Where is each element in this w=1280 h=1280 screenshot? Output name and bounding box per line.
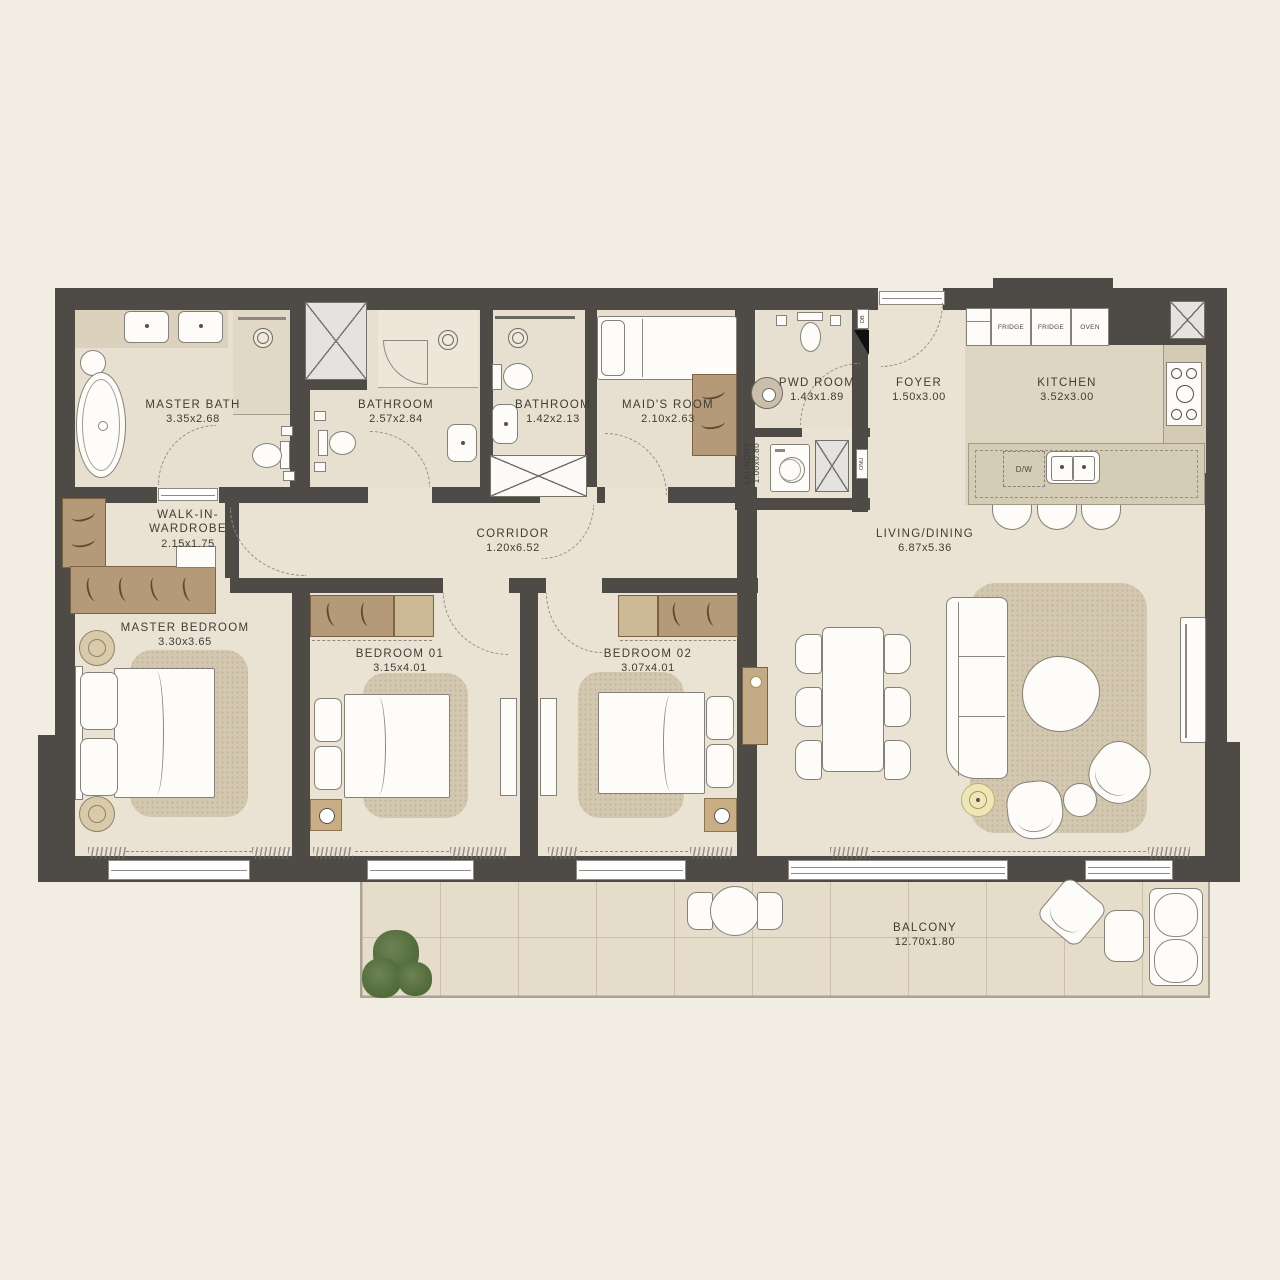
shaft-bathroom-icon [305,302,367,380]
toilet-bowl-icon [329,431,356,455]
curtain-hatch-icon [548,847,578,859]
onu-label: ONU [857,450,867,478]
floor-plan: DB ONU FRIDGE FRIDGE OVEN D/W [0,0,1280,1280]
room-name: KITCHEN [1037,377,1097,389]
room-name: MASTER BATH [145,399,240,411]
room-name: BEDROOM 01 [356,648,444,660]
toilet-bowl-icon [800,322,821,352]
room-label-pwd-room: PWD ROOM 1.43x1.89 [779,377,855,403]
bathtub-icon [76,372,126,478]
curtain-hatch-icon [450,847,506,859]
wall-pwd-bottom-1 [755,428,802,437]
dresser-icon [500,698,517,796]
wall-master-bedroom01 [292,578,310,858]
wall-accessory-icon [283,471,295,481]
room-dims: 12.70x1.80 [893,936,957,948]
room-name: FOYER [892,377,946,389]
curtain-hatch-icon [1148,847,1190,859]
room-name: BATHROOM [515,399,591,411]
bathroom-sink-icon [447,424,477,462]
toilet-bowl-icon [503,363,533,390]
room-label-balcony: BALCONY 12.70x1.80 [893,922,957,948]
db-box: DB [857,309,869,329]
dining-chair-icon [795,687,822,727]
room-label-bathroom-1: BATHROOM 2.57x2.84 [358,399,434,425]
curtain-track-line [126,851,252,852]
balcony-table-icon [710,886,760,936]
room-label-corridor: CORRIDOR 1.20x6.52 [476,528,549,554]
master-bath-shower-zone [233,308,292,415]
toilet-cistern-icon [318,430,328,456]
double-sink-icon [1046,451,1100,484]
tv-console-icon [1180,617,1206,743]
pillow-icon [314,746,342,790]
room-label-kitchen: KITCHEN 3.52x3.00 [1037,377,1097,403]
wall-corridor-3 [602,578,758,593]
room-label-laundry: LAUNDRY 1.00x0.80 [743,428,761,498]
fridge-1-label: FRIDGE [998,324,1024,331]
dining-table [822,627,884,772]
wardrobe-icon [62,498,106,568]
window-bedroom-02 [576,860,686,880]
shaft-laundry-icon [815,440,849,492]
fridge-2-label: FRIDGE [1038,324,1064,331]
dresser-icon [540,698,557,796]
wardrobe-icon [70,566,216,614]
bedside-table-icon [79,630,115,666]
pillow-icon [601,320,625,376]
room-label-bathroom-2: BATHROOM 1.42x2.13 [515,399,591,425]
room-dims: 3.30x3.65 [121,636,250,648]
db-label: DB [858,310,868,328]
room-name: MASTER BEDROOM [121,622,250,634]
double-bed-icon [598,692,705,794]
room-dims: 1.00x0.80 [752,428,761,498]
shower-head-icon [253,328,273,348]
curtain-hatch-icon [830,847,870,859]
room-dims: 1.43x1.89 [779,391,855,403]
toilet-cistern-icon [797,312,823,321]
room-dims: 2.15x1.75 [142,538,234,550]
wall-accessory-icon [830,315,841,326]
plant-icon [398,962,432,996]
room-dims: 3.52x3.00 [1037,391,1097,403]
wardrobe-icon [658,595,738,637]
dishwasher: D/W [1003,451,1045,487]
window-bedroom-01 [367,860,474,880]
room-name: MAID'S ROOM [622,399,714,411]
fridge-2: FRIDGE [1031,308,1071,346]
room-dims: 2.10x2.63 [622,413,714,425]
balcony-chair-icon [757,892,783,930]
console-table-icon [742,667,768,745]
onu-box: ONU [856,449,868,479]
curtain-hatch-icon [88,847,126,859]
room-label-bedroom-01: BEDROOM 01 3.15x4.01 [356,648,444,674]
wall-accessory-icon [314,411,326,421]
window-master-bedroom [108,860,250,880]
vanity-sink-icon [124,311,169,343]
shower-rail-icon [238,317,286,320]
vanity-sink-icon [178,311,223,343]
wardrobe-swing-line [620,640,736,641]
wall-top-protrusion [993,278,1113,290]
dining-chair-icon [884,740,911,780]
dishwasher-label: D/W [1016,465,1032,474]
room-label-walk-in-wardrobe: WALK-IN-WARDROBE 2.15x1.75 [142,508,234,550]
balcony-sofa-icon [1149,888,1203,986]
plant-icon [362,958,402,998]
double-bed-icon [114,668,215,798]
bedside-table-icon [79,796,115,832]
curtain-hatch-icon [252,847,290,859]
curtain-track-line [580,851,688,852]
oven-label: OVEN [1080,324,1100,331]
room-name: BEDROOM 02 [604,648,692,660]
curtain-track-line [872,851,1146,852]
oven: OVEN [1071,308,1109,346]
toilet-cistern-icon [492,364,502,390]
wall-accessory-icon [776,315,787,326]
wall-wetband-2 [219,487,368,503]
curtain-hatch-icon [313,847,353,859]
room-name: LAUNDRY [743,428,752,498]
stove-icon [1166,362,1202,426]
room-name: PWD ROOM [779,377,855,389]
pillow-icon [706,744,734,788]
pillow-icon [706,696,734,740]
pillow-icon [80,672,118,730]
room-dims: 1.42x2.13 [515,413,591,425]
wall-accessory-icon [314,462,326,472]
curtain-hatch-icon [690,847,732,859]
sliding-door-living-1 [788,860,1008,880]
dining-chair-icon [884,687,911,727]
room-label-bedroom-02: BEDROOM 02 3.07x4.01 [604,648,692,674]
single-bed-icon [597,316,737,380]
wall-wetband-4 [597,487,605,503]
kitchen-cabinet-icon [966,308,991,346]
room-dims: 6.87x5.36 [876,542,974,554]
toilet-bowl-icon [252,443,282,468]
nightstand-icon [704,798,737,832]
pillow-icon [80,738,118,796]
fridge-1: FRIDGE [991,308,1031,346]
room-dims: 1.20x6.52 [476,542,549,554]
room-dims: 3.07x4.01 [604,662,692,674]
balcony-side-table-icon [1104,910,1144,962]
shower-head-icon [508,328,528,348]
mirror-icon [495,316,575,319]
room-name: WALK-IN-WARDROBE [142,508,234,536]
room-label-foyer: FOYER 1.50x3.00 [892,377,946,403]
wall-accessory-icon [281,426,293,436]
masterbath-door-threshold [158,488,218,501]
sliding-door-living-2 [1085,860,1173,880]
wall-corridor-1 [230,578,443,593]
curtain-track-line [355,851,449,852]
nightstand-icon [310,799,342,831]
room-dims: 3.15x4.01 [356,662,444,674]
room-dims: 2.57x2.84 [358,413,434,425]
wardrobe-icon [310,595,394,637]
shower-tray-icon [490,455,587,497]
shower-head-icon [438,330,458,350]
room-dims: 3.35x2.68 [145,413,240,425]
sofa-icon [946,597,1008,779]
double-bed-icon [344,694,450,798]
wardrobe-cabinet-icon [618,595,658,637]
room-name: BALCONY [893,922,957,934]
dining-chair-icon [795,740,822,780]
room-dims: 1.50x3.00 [892,391,946,403]
room-name: CORRIDOR [476,528,549,540]
floor-lamp-icon [961,783,995,817]
wardrobe-swing-line [312,640,432,641]
pillow-icon [314,698,342,742]
room-label-master-bath: MASTER BATH 3.35x2.68 [145,399,240,425]
dining-chair-icon [884,634,911,674]
room-label-living-dining: LIVING/DINING 6.87x5.36 [876,528,974,554]
room-name: LIVING/DINING [876,528,974,540]
wall-bedroom01-bedroom02 [520,578,538,858]
washing-machine-icon [770,444,810,492]
room-name: BATHROOM [358,399,434,411]
shaft-kitchen-icon [1170,301,1205,339]
room-label-master-bedroom: MASTER BEDROOM 3.30x3.65 [121,622,250,648]
room-label-maids-room: MAID'S ROOM 2.10x2.63 [622,399,714,425]
dining-chair-icon [795,634,822,674]
wardrobe-cabinet-icon [394,595,434,637]
